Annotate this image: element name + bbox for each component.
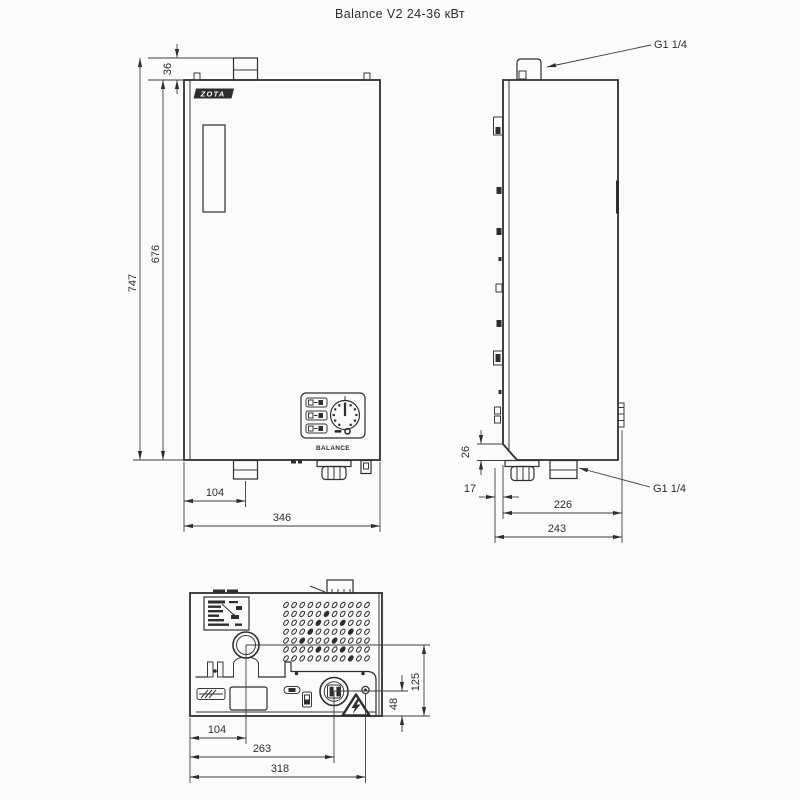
dim-bottom-pipe-offset: 104	[190, 724, 246, 740]
front-dimensions: 747 676 36 104	[127, 44, 380, 532]
dim-bottom-recess-depth: 125	[410, 645, 426, 716]
dim-label-48: 48	[388, 698, 400, 710]
drawing-page: Balance V2 24-36 кВт ZOTA	[0, 0, 800, 800]
dim-side-depth: 226	[503, 499, 622, 515]
dim-bottom-panel-depth: 48	[388, 675, 404, 732]
junction-box	[230, 687, 267, 710]
display-window	[203, 125, 225, 212]
balance-label: BALANCE	[316, 445, 350, 452]
vent-slot	[197, 689, 225, 700]
zota-logo: ZOTA	[194, 89, 235, 99]
front-top-tab-left	[194, 73, 200, 80]
switch-3	[306, 424, 327, 433]
dim-label-243: 243	[548, 523, 566, 535]
dim-side-bracket-gap: 17	[464, 483, 519, 499]
front-cable-gland	[317, 461, 351, 480]
recess-post-2	[218, 662, 224, 677]
dim-front-pipe-offset: 104	[184, 487, 246, 503]
front-bottom-mark-2	[298, 461, 302, 464]
oval-connector	[284, 687, 300, 694]
front-body	[184, 80, 380, 460]
front-bottom-pipe	[234, 461, 258, 480]
dim-label-346: 346	[273, 512, 291, 524]
dim-label-747: 747	[127, 274, 139, 292]
bottom-view: 104 263 318 125	[190, 580, 430, 783]
front-bottom-mark-1	[291, 461, 296, 464]
front-top-pipe	[234, 58, 258, 80]
power-switch	[303, 692, 312, 707]
side-top-pipe	[517, 59, 541, 80]
side-body	[503, 80, 618, 460]
dim-bottom-connector-offset: 263	[190, 743, 334, 759]
dim-bottom-screw-offset: 318	[190, 763, 366, 779]
bottom-dimensions: 104 263 318 125	[190, 645, 430, 783]
dim-label-104-bottom: 104	[208, 724, 226, 736]
dim-label-318: 318	[271, 763, 289, 775]
bottom-edge-mark-2	[227, 590, 238, 594]
front-top-tab-right	[364, 73, 370, 80]
dim-side-chamfer: 26	[460, 430, 505, 475]
fitting-callout-bottom: G1 1/4	[578, 466, 686, 495]
dim-front-total-height: 747	[127, 58, 142, 460]
bottom-edge-mark-1	[213, 590, 225, 594]
dim-label-36: 36	[162, 63, 174, 75]
side-view: G1 1/4 G1 1/4 26	[460, 39, 687, 543]
dim-label-676: 676	[150, 245, 162, 263]
thermostat-dial	[331, 396, 360, 434]
rating-sticker	[204, 597, 249, 630]
zota-logo-text: ZOTA	[200, 90, 226, 99]
dim-label-263: 263	[253, 743, 271, 755]
dim-front-body-height: 676	[150, 80, 165, 460]
switch-1	[306, 398, 327, 407]
ground-screw	[362, 686, 369, 693]
bottom-pipe-stub	[310, 580, 353, 593]
dial-min-mark	[335, 430, 342, 433]
dim-label-26: 26	[460, 446, 472, 458]
recess-screw-2	[295, 672, 299, 676]
front-small-connector	[361, 461, 371, 474]
dim-front-pipe-height: 36	[162, 44, 179, 94]
drawing-title: Balance V2 24-36 кВт	[335, 7, 465, 21]
dim-side-depth-total: 243	[495, 523, 622, 539]
dim-front-width: 346	[184, 512, 380, 528]
dim-label-104-front: 104	[206, 487, 224, 499]
technical-drawing: Balance V2 24-36 кВт ZOTA	[0, 0, 800, 800]
dim-label-226: 226	[554, 499, 572, 511]
recess-post-1	[208, 662, 214, 677]
dim-label-125: 125	[410, 673, 422, 691]
recess-screw-3	[361, 672, 365, 676]
side-cable-gland	[505, 461, 539, 481]
side-bottom-pipe	[550, 461, 577, 479]
ventilation-louvres	[283, 601, 371, 662]
dial-off-mark	[345, 429, 350, 434]
side-dimensions: 26 17 226	[460, 430, 622, 543]
fitting-label-top: G1 1/4	[654, 39, 687, 51]
power-switches	[306, 398, 327, 433]
control-panel	[301, 393, 365, 438]
fitting-callout-top: G1 1/4	[547, 39, 687, 69]
switch-2	[306, 411, 327, 420]
dim-label-17: 17	[464, 483, 476, 495]
fitting-label-bottom: G1 1/4	[653, 483, 686, 495]
side-rear-tabs	[494, 117, 503, 423]
front-view: ZOTA	[127, 44, 380, 532]
recess-screw-1	[213, 669, 217, 673]
